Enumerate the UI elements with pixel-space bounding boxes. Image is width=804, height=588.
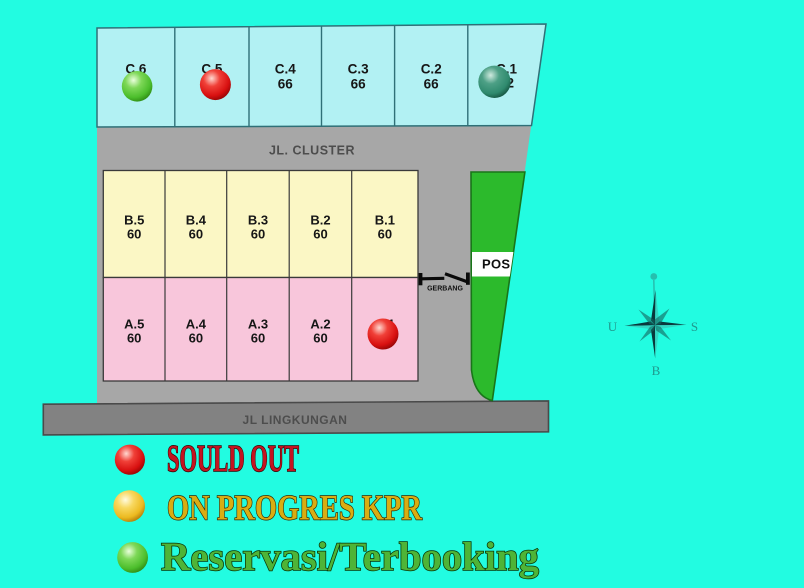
svg-text:A.4: A.4 — [186, 317, 207, 332]
svg-text:66: 66 — [278, 77, 294, 92]
svg-text:ON PROGRES KPR: ON PROGRES KPR — [167, 488, 423, 528]
svg-text:GERBANG: GERBANG — [427, 286, 463, 293]
svg-text:60: 60 — [313, 331, 327, 346]
svg-text:A.3: A.3 — [248, 317, 268, 332]
svg-text:POS: POS — [482, 257, 510, 272]
svg-text:B.4: B.4 — [186, 213, 207, 228]
svg-text:JL. CLUSTER: JL. CLUSTER — [269, 144, 355, 158]
svg-text:B: B — [652, 363, 661, 378]
svg-text:JL LINGKUNGAN: JL LINGKUNGAN — [243, 413, 348, 427]
svg-text:U: U — [608, 319, 618, 334]
svg-text:Reservasi/Terbooking: Reservasi/Terbooking — [161, 534, 539, 579]
svg-text:B.5: B.5 — [124, 213, 144, 228]
svg-text:A.2: A.2 — [310, 317, 330, 332]
svg-text:B.2: B.2 — [310, 213, 330, 228]
svg-text:A.5: A.5 — [124, 317, 144, 332]
svg-text:66: 66 — [424, 77, 440, 92]
svg-text:60: 60 — [189, 331, 203, 346]
svg-text:60: 60 — [127, 227, 141, 242]
svg-text:60: 60 — [313, 227, 327, 242]
svg-text:60: 60 — [127, 331, 141, 346]
svg-text:C.2: C.2 — [421, 62, 442, 77]
svg-text:60: 60 — [251, 227, 265, 242]
svg-text:B.3: B.3 — [248, 213, 268, 228]
svg-text:SOULD OUT: SOULD OUT — [167, 438, 299, 480]
svg-text:60: 60 — [378, 227, 392, 242]
svg-text:66: 66 — [351, 77, 367, 92]
svg-text:B.1: B.1 — [375, 213, 395, 228]
svg-text:60: 60 — [251, 331, 265, 346]
svg-text:C.4: C.4 — [275, 62, 297, 77]
svg-text:60: 60 — [189, 227, 203, 242]
svg-text:C.3: C.3 — [348, 62, 370, 77]
svg-text:S: S — [691, 319, 698, 334]
